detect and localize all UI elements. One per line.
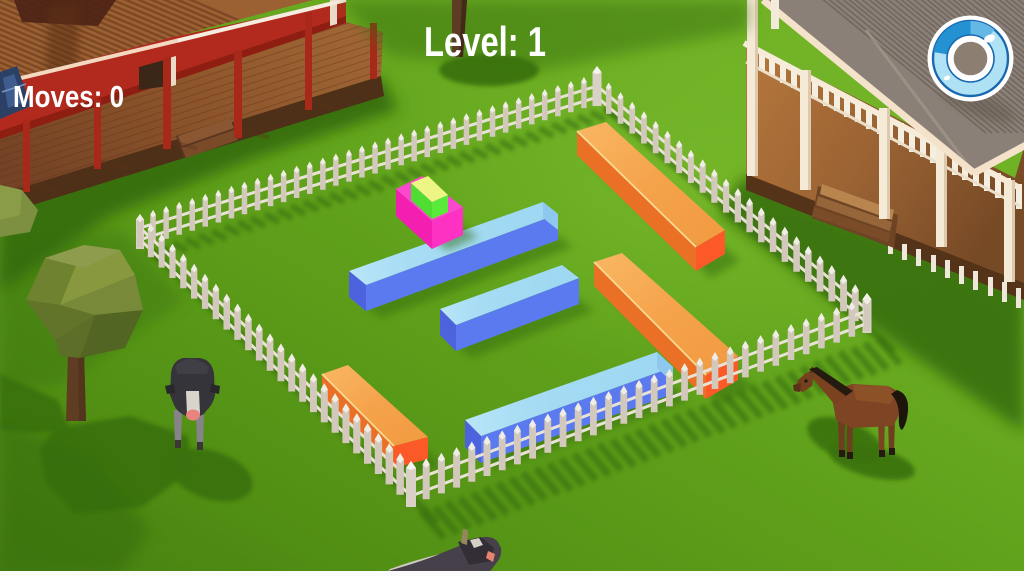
svg-text:Moves: 0: Moves: 0 [13, 79, 124, 114]
svg-text:Level: 1: Level: 1 [424, 18, 546, 65]
